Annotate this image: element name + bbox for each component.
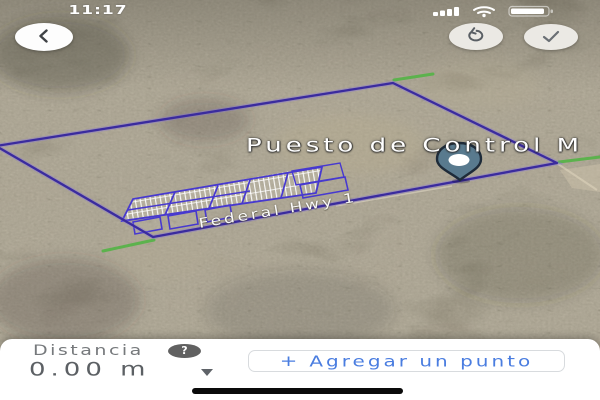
- back-button[interactable]: [15, 23, 73, 51]
- add-point-button[interactable]: + Agregar un punto: [248, 350, 565, 372]
- undo-icon: [465, 27, 487, 46]
- home-indicator[interactable]: [192, 388, 403, 394]
- undo-button[interactable]: [449, 23, 503, 50]
- status-time: 11:17: [68, 3, 128, 17]
- chevron-down-icon[interactable]: [201, 369, 213, 376]
- add-point-label: Agregar un punto: [309, 354, 533, 369]
- plus-icon: +: [280, 353, 298, 368]
- place-label: Puesto de Control M: [246, 135, 583, 157]
- checkmark-icon: [541, 28, 561, 47]
- confirm-button[interactable]: [524, 24, 578, 50]
- help-icon[interactable]: ?: [168, 344, 201, 358]
- phone-screen: 11:17 Puesto de Control M Federal Hwy 1 …: [0, 0, 600, 400]
- help-question-mark: ?: [181, 344, 187, 358]
- distance-title: Distancia: [33, 342, 144, 359]
- distance-value[interactable]: 0.00 m: [29, 359, 150, 381]
- chevron-left-icon: [37, 28, 51, 47]
